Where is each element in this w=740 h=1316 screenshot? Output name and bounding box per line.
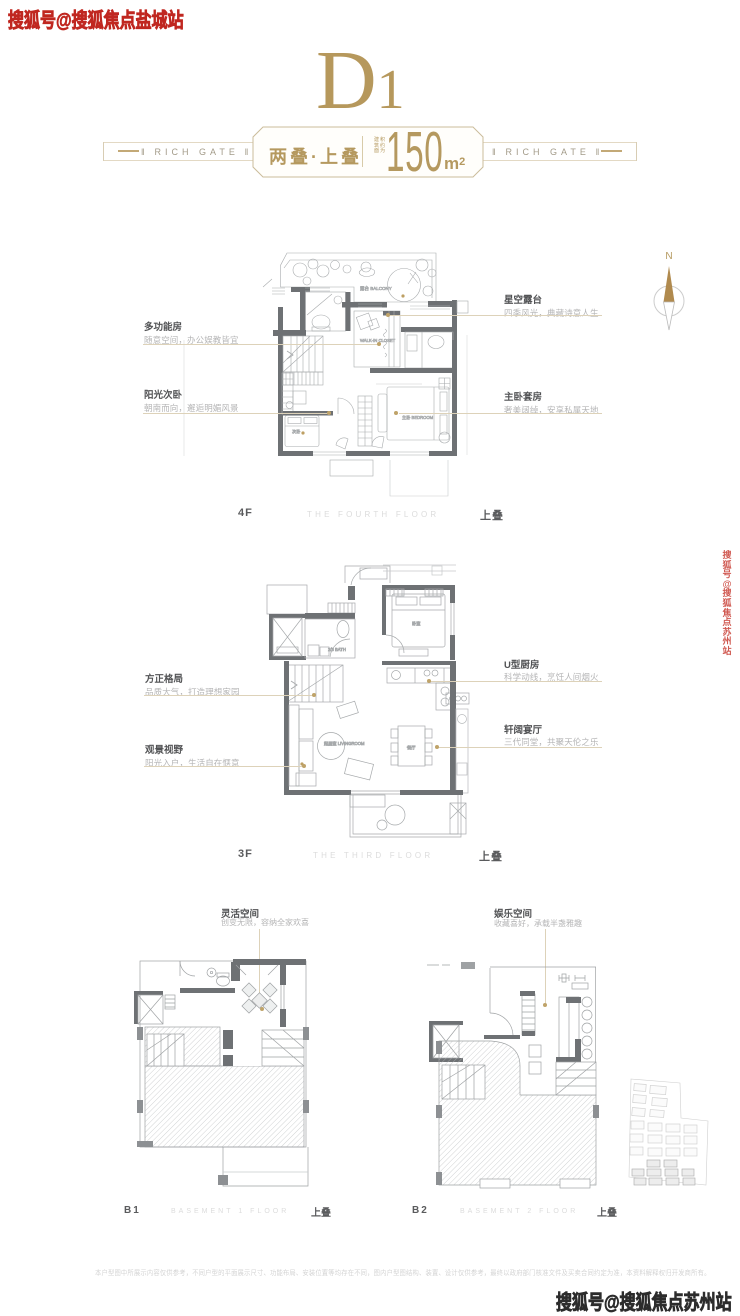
svg-text:餐厅: 餐厅 bbox=[407, 744, 415, 751]
svg-text:露台 BALCONY: 露台 BALCONY bbox=[360, 285, 392, 292]
svg-text:次卧: 次卧 bbox=[292, 428, 300, 435]
svg-text:主卧 BEDROOM: 主卧 BEDROOM bbox=[402, 414, 434, 421]
svg-text:2/3 BATH: 2/3 BATH bbox=[328, 647, 346, 652]
svg-text:卧室: 卧室 bbox=[412, 620, 420, 627]
svg-text:N: N bbox=[665, 251, 672, 262]
